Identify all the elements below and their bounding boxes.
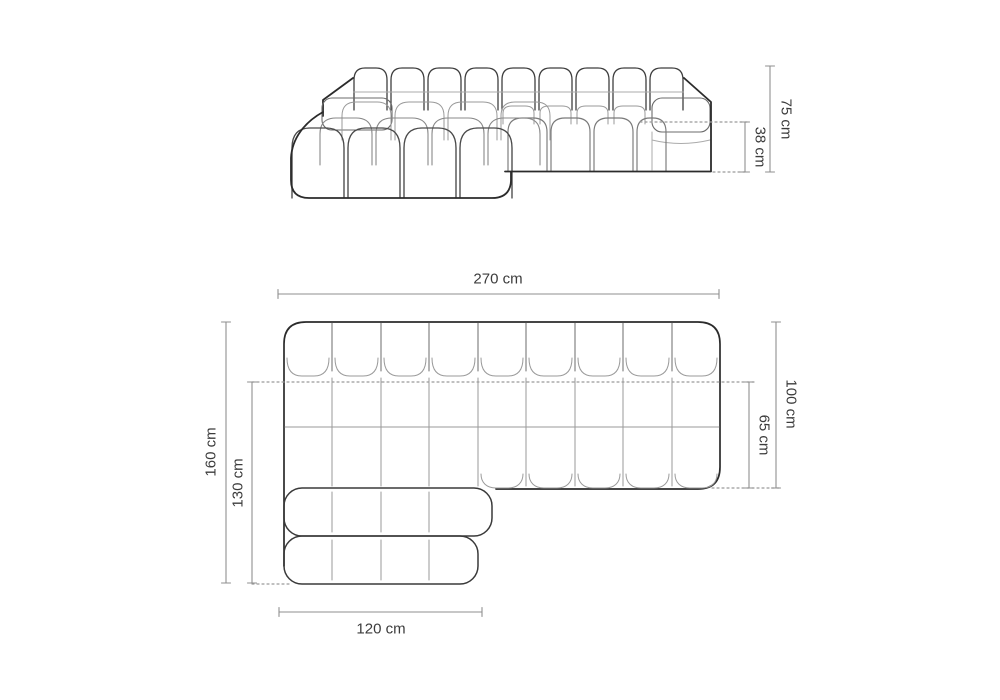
plan-chaise-row-1 bbox=[284, 488, 492, 536]
plan-body-outline bbox=[284, 322, 720, 566]
plan-chaise bbox=[284, 488, 492, 584]
dim-line-seat-height bbox=[741, 122, 750, 172]
plan-seat-bottom-scallops bbox=[481, 474, 717, 488]
dim-label-seat-depth: 65 cm bbox=[757, 415, 772, 456]
plan-reference-dotted-lines bbox=[252, 382, 781, 584]
plan-backrest bbox=[287, 323, 717, 376]
front-silhouette bbox=[291, 112, 511, 198]
dim-label-overall-depth: 160 cm bbox=[204, 427, 219, 476]
dim-label-body-depth: 100 cm bbox=[784, 379, 799, 428]
front-left-armrest-edge bbox=[323, 78, 353, 116]
front-seat-scallops bbox=[503, 106, 645, 124]
front-right-armrest-edge bbox=[684, 78, 711, 171]
front-left-armrest bbox=[322, 78, 392, 130]
front-chaise-middle-row bbox=[320, 118, 540, 165]
front-view-drawing bbox=[291, 66, 775, 198]
dim-line-chaise-width bbox=[279, 608, 482, 617]
dim-line-overall-width bbox=[278, 290, 719, 299]
plan-seat-dividers bbox=[332, 378, 672, 486]
dim-line-seat-depth bbox=[745, 382, 754, 488]
front-backrest bbox=[354, 68, 683, 110]
diagram-canvas bbox=[0, 0, 1000, 700]
front-seat-bubbles bbox=[508, 118, 666, 171]
plan-backrest-scallops bbox=[287, 358, 717, 376]
dim-line-body-depth bbox=[772, 322, 781, 488]
dim-label-overall-height: 75 cm bbox=[779, 99, 794, 140]
top-view-drawing bbox=[222, 290, 782, 617]
front-chaise-back-row bbox=[342, 102, 550, 140]
plan-backrest-dividers bbox=[332, 323, 672, 371]
front-seat-cushions bbox=[503, 106, 666, 171]
dim-label-chaise-width: 120 cm bbox=[356, 622, 405, 637]
front-chaise-front-row bbox=[292, 128, 512, 198]
front-right-armrest-crease bbox=[652, 140, 710, 144]
dim-line-overall-depth bbox=[222, 322, 231, 583]
dim-label-seat-height: 38 cm bbox=[753, 127, 768, 168]
sofa-dimension-diagram: 75 cm 38 cm 270 cm 160 cm 130 cm 100 cm … bbox=[0, 0, 1000, 700]
dim-line-chaise-depth bbox=[248, 382, 257, 583]
dim-label-chaise-depth: 130 cm bbox=[231, 458, 246, 507]
front-right-armrest-top bbox=[652, 98, 710, 132]
plan-seat-grid bbox=[285, 378, 719, 488]
dim-label-overall-width: 270 cm bbox=[473, 272, 522, 287]
front-backrest-cushions bbox=[354, 68, 683, 110]
